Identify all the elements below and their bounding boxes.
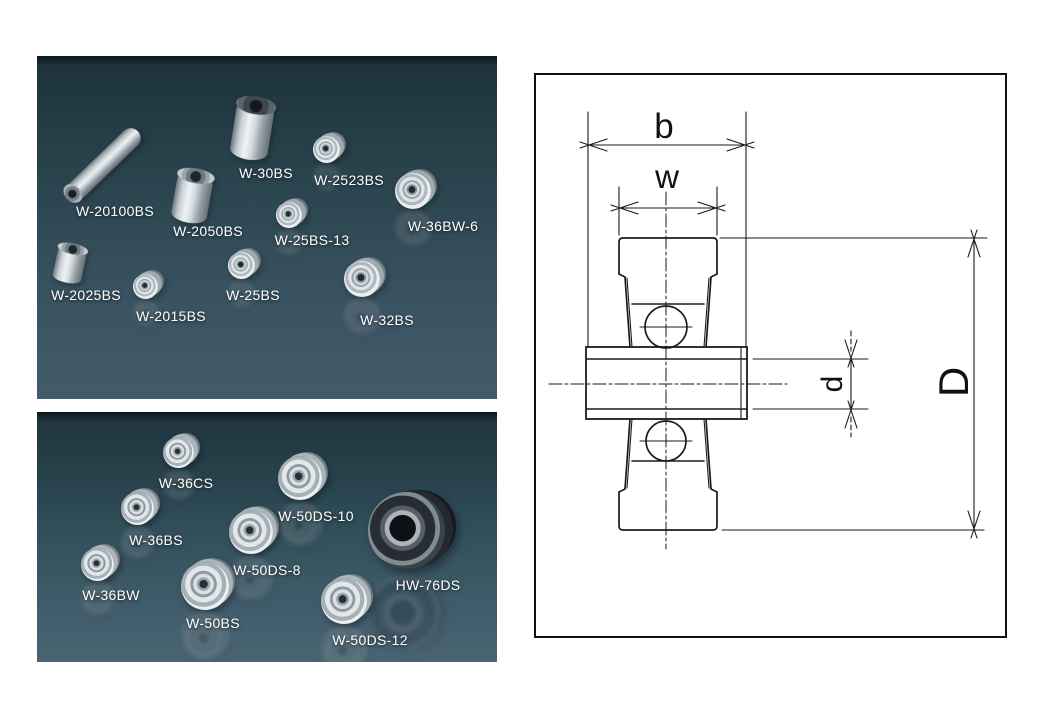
- product-label: W-50DS-8: [233, 562, 301, 578]
- product-photo-w-2523bs: [313, 136, 340, 163]
- product-photo-panel-top: W-20100BS W-30BS W-2523BS W-36BW-6 W-205…: [37, 56, 497, 399]
- product-photo-w-2025bs: [52, 244, 88, 285]
- dim-label-d: d: [816, 376, 849, 393]
- product-photo-w-36cs: [163, 437, 194, 468]
- product-label: W-50BS: [186, 615, 240, 631]
- product-photo-w-36bs: [121, 492, 154, 525]
- page: W-20100BS W-30BS W-2523BS W-36BW-6 W-205…: [0, 0, 1050, 712]
- product-photo-w-32bs: [344, 261, 380, 297]
- product-photo-w-30bs: [229, 99, 276, 162]
- product-label: W-30BS: [239, 165, 293, 181]
- product-photo-w-25bs: [228, 252, 255, 279]
- product-label: W-36BW: [82, 587, 140, 603]
- product-label: W-25BS: [226, 287, 280, 303]
- product-photo-w-36bw-6: [395, 173, 431, 209]
- dim-label-D: D: [930, 367, 977, 397]
- product-photo-w-25bs-13: [276, 202, 302, 228]
- product-label: W-2050BS: [173, 223, 243, 239]
- dim-label-b: b: [654, 107, 673, 146]
- product-photo-w-20100bs: [62, 124, 145, 205]
- bearing-cross-section-drawing: b w d D: [536, 75, 1005, 636]
- product-label: W-50DS-10: [278, 508, 354, 524]
- outer-ring-top: [619, 238, 717, 274]
- product-label: W-20100BS: [76, 203, 154, 219]
- product-label: W-36BS: [129, 532, 183, 548]
- product-label: W-2025BS: [51, 287, 121, 303]
- product-photo-w-36bw: [81, 548, 114, 581]
- product-photo-hw-76ds: [368, 492, 445, 569]
- product-photo-w-2050bs: [170, 170, 214, 225]
- product-label: W-36CS: [159, 475, 213, 491]
- product-label: W-32BS: [360, 312, 414, 328]
- product-photo-w-50ds-12: [321, 578, 367, 624]
- product-photo-w-50ds-8: [229, 510, 273, 554]
- product-photo-w-50ds-10: [278, 456, 322, 500]
- product-label: W-2523BS: [314, 172, 384, 188]
- product-label: W-50DS-12: [332, 632, 408, 648]
- dimension-diagram-panel: b w d D: [534, 73, 1007, 638]
- product-label: W-25BS-13: [275, 232, 350, 248]
- dim-label-w: w: [654, 158, 679, 195]
- product-label: W-2015BS: [136, 308, 206, 324]
- b-extension-lines: [588, 112, 746, 347]
- product-photo-w-50bs: [181, 562, 229, 610]
- outer-ring-bottom: [619, 492, 717, 530]
- product-photo-panel-bottom: W-36CS W-50DS-10 W-36BS W-50DS-8 HW-76DS…: [37, 412, 497, 662]
- product-label: W-36BW-6: [408, 218, 478, 234]
- product-photo-w-2015bs: [133, 274, 158, 299]
- product-label: HW-76DS: [396, 577, 461, 593]
